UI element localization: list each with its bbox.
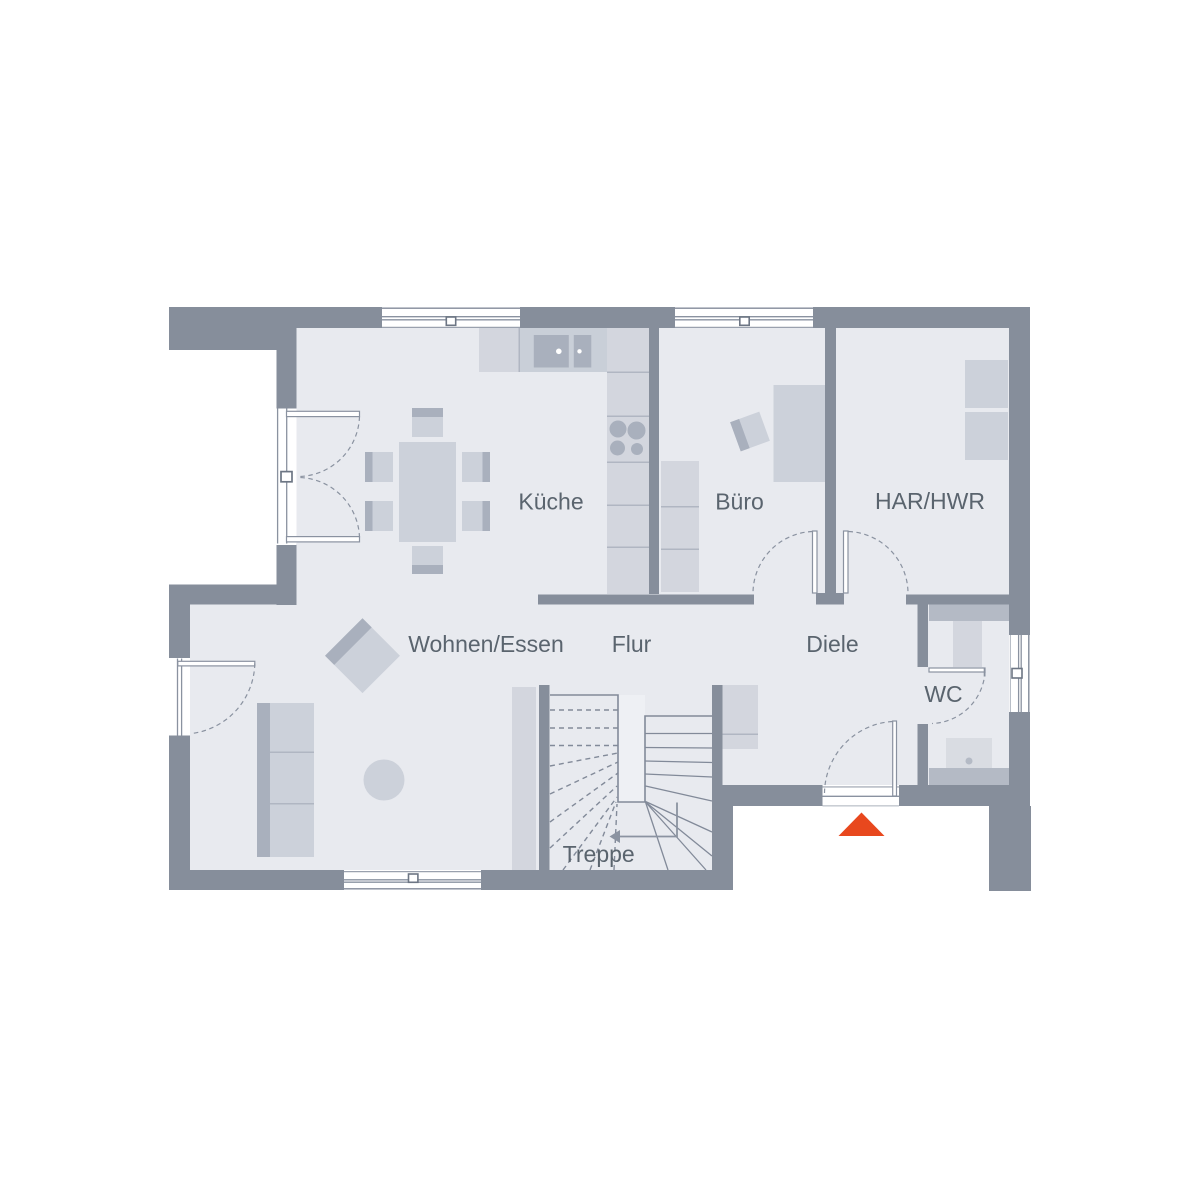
- svg-text:Flur: Flur: [612, 631, 652, 657]
- svg-text:Diele: Diele: [806, 631, 858, 657]
- svg-text:HAR/HWR: HAR/HWR: [875, 488, 985, 514]
- svg-text:Büro: Büro: [715, 489, 764, 515]
- svg-text:Küche: Küche: [518, 489, 583, 515]
- svg-text:Treppe: Treppe: [563, 841, 635, 867]
- svg-text:Wohnen/Essen: Wohnen/Essen: [408, 631, 564, 657]
- svg-text:WC: WC: [924, 681, 962, 707]
